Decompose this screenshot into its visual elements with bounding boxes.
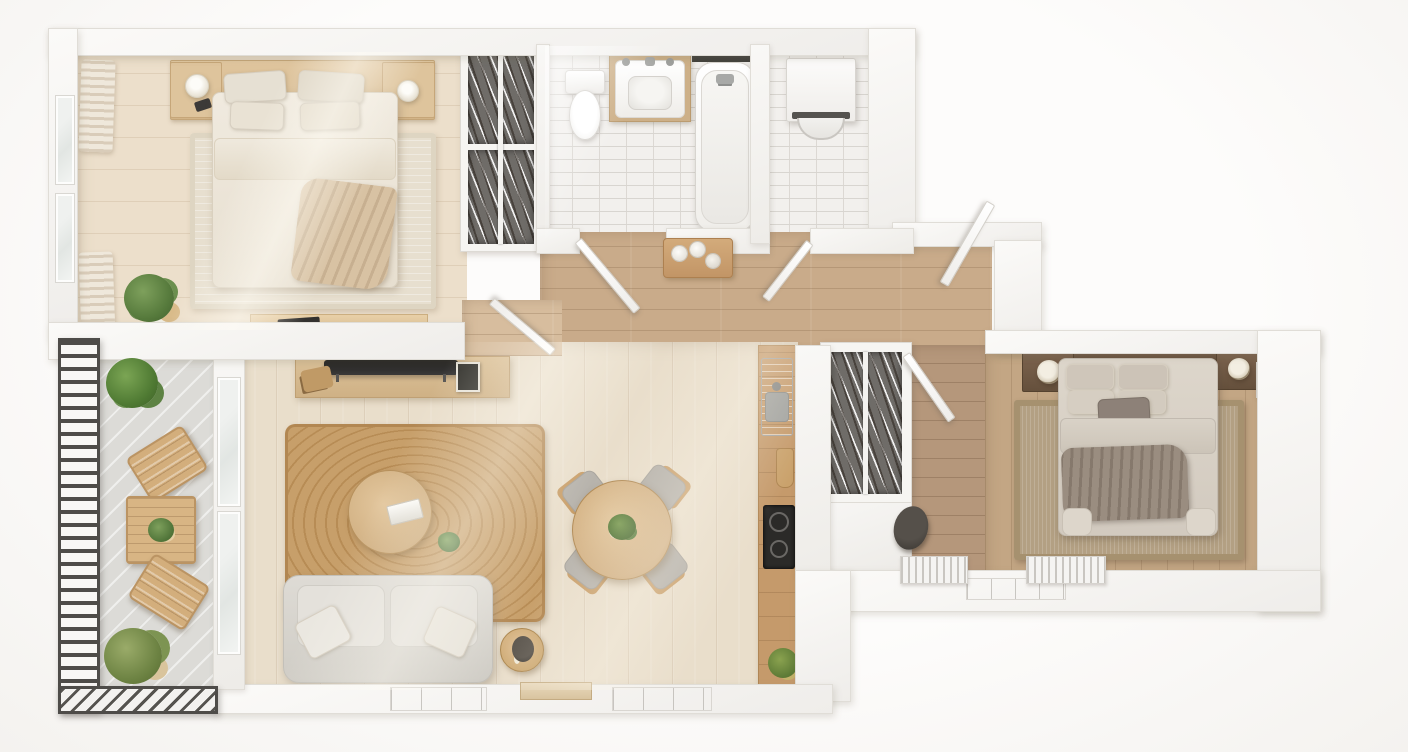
side-table-lamp: [512, 636, 534, 662]
cooktop-burner-1: [769, 512, 789, 532]
balcony-plant-bottom: [104, 628, 162, 684]
wall-top: [48, 28, 914, 56]
balcony-glass-upper: [218, 378, 240, 506]
bed1-lamp-left: [185, 74, 209, 98]
balcony-railing-left: [58, 338, 100, 712]
tub-faucet: [716, 74, 734, 84]
tv-stand-legs: [336, 374, 446, 382]
bed1-throw-blanket: [290, 177, 398, 292]
wall-bedroom1-bottom: [48, 322, 465, 360]
wall-left: [48, 28, 78, 340]
bed2-pillow-nw: [1066, 364, 1114, 390]
window-left-lower: [56, 194, 74, 282]
vanity-faucet-right: [666, 58, 674, 66]
bed2-lamp-right: [1228, 358, 1250, 380]
cutting-board: [776, 448, 794, 488]
balcony-glass-lower: [218, 512, 240, 654]
photo-frame: [456, 362, 480, 392]
wall-laundry-bottom: [810, 228, 914, 254]
living-windowsill-tray: [520, 682, 592, 700]
living-window-left: [390, 687, 487, 711]
bed1-pillow-ne: [297, 70, 365, 105]
wardrobe-rail: [498, 52, 503, 244]
hall-bench-towel-1: [672, 246, 687, 261]
hall-bench-towel-2: [690, 242, 705, 257]
vanity-sink-bowl: [628, 76, 672, 110]
dining-centerpiece: [608, 514, 636, 540]
cooktop-burner-2: [770, 540, 788, 558]
bed1-lamp-right: [397, 80, 419, 102]
wall-bathroom-bottom-left: [536, 228, 580, 254]
entry-radiator-right: [1026, 556, 1106, 584]
television: [324, 360, 458, 375]
wall-kitchen-corner: [795, 570, 851, 702]
vanity-faucet-center: [645, 57, 655, 66]
curtain-top: [78, 59, 115, 152]
bed1-pillow-nw: [223, 70, 287, 104]
wall-kitchen-back: [795, 345, 831, 575]
floor-plan: [0, 0, 1408, 752]
bed1-duvet-fold: [214, 138, 396, 180]
living-window-right: [612, 687, 712, 711]
coffee-table-plant: [438, 532, 460, 552]
bedroom1-plant: [124, 274, 174, 322]
toilet-bowl: [569, 90, 601, 140]
kitchen-plant: [768, 648, 798, 678]
bed2-foot-right: [1186, 508, 1216, 536]
bed2-pillow-ne: [1118, 364, 1168, 390]
kitchen-sink-bowl: [765, 392, 789, 422]
balcony-plant-top: [106, 358, 158, 408]
bathtub-inner: [701, 70, 749, 224]
bed1-pillow-se: [300, 101, 361, 131]
vanity-faucet-left: [622, 58, 630, 66]
coat-closet-rail: [863, 352, 868, 494]
balcony-railing-bottom: [58, 686, 218, 714]
wall-laundry-right: [868, 28, 916, 246]
wall-closet-bathroom: [536, 44, 550, 252]
wall-bath-laundry: [750, 44, 770, 244]
bed2-foot-left: [1062, 508, 1092, 536]
hall-bench-towel-3: [706, 254, 720, 268]
entry-radiator-left: [900, 556, 968, 584]
window-left-upper: [56, 96, 74, 184]
bed1-pillow-sw: [230, 101, 285, 131]
balcony-table-plant: [148, 518, 174, 542]
kitchen-faucet: [772, 382, 781, 391]
